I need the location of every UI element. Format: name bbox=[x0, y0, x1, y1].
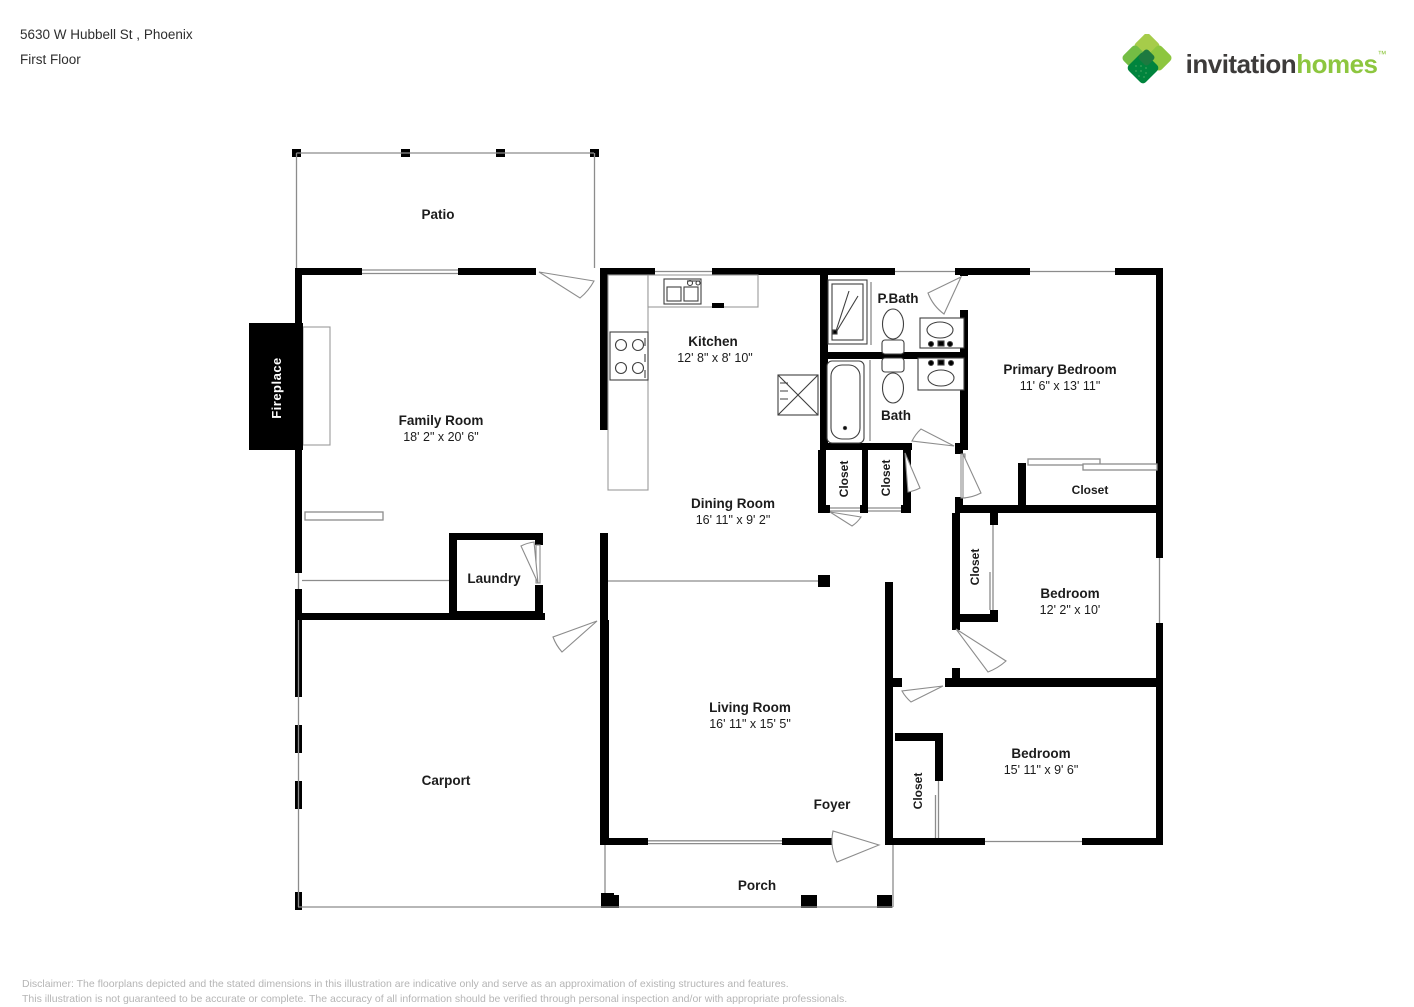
stove-icon bbox=[610, 332, 648, 380]
toilet-icon-pbath bbox=[882, 309, 904, 354]
patio-label: Patio bbox=[421, 207, 454, 222]
disclaimer-line1: Disclaimer: The floorplans depicted and … bbox=[22, 977, 1222, 992]
hall-closet-door-swing bbox=[830, 512, 861, 526]
pbath-door-swing bbox=[928, 277, 961, 314]
carport-door-swing bbox=[553, 621, 597, 652]
laundry-label: Laundry bbox=[467, 571, 521, 586]
bottom-bedroom-door-swing bbox=[902, 686, 943, 702]
bedroom-bottom-dims: 15' 11" x 9' 6" bbox=[1004, 763, 1079, 777]
floorplan-drawing: Patio Family Room 18' 2" x 20' 6" Kitche… bbox=[0, 0, 1414, 1000]
closet-label-bedroom-bottom: Closet bbox=[911, 773, 925, 810]
fireplace-hearth bbox=[303, 327, 330, 445]
closet-label-hall-b: Closet bbox=[879, 460, 893, 497]
closet-label-bedroom-mid: Closet bbox=[968, 549, 982, 586]
kitchen-dims: 12' 8" x 8' 10" bbox=[677, 351, 753, 365]
refrigerator-icon bbox=[778, 375, 818, 415]
closet-label-hall-a: Closet bbox=[837, 461, 851, 498]
kitchen-counter-left bbox=[608, 275, 648, 490]
walls-layer bbox=[292, 149, 1163, 910]
bath-label: Bath bbox=[881, 408, 911, 423]
living-room-label: Living Room bbox=[709, 700, 791, 715]
dining-room-dims: 16' 11" x 9' 2" bbox=[696, 513, 771, 527]
family-room-dims: 18' 2" x 20' 6" bbox=[403, 430, 479, 444]
room-labels-layer: Patio Family Room 18' 2" x 20' 6" Kitche… bbox=[269, 207, 1117, 893]
family-room-label: Family Room bbox=[399, 413, 484, 428]
living-room-dims: 16' 11" x 15' 5" bbox=[709, 717, 791, 731]
bathtub-icon bbox=[827, 361, 864, 443]
front-door-swing bbox=[832, 831, 879, 862]
kitchen-sink-icon bbox=[664, 279, 701, 304]
mid-bedroom-door-swing bbox=[956, 629, 1006, 672]
porch-label: Porch bbox=[738, 878, 776, 893]
bedroom-mid-dims: 12' 2" x 10' bbox=[1040, 603, 1101, 617]
hallway-door-swing bbox=[905, 453, 920, 492]
fireplace-label: Fireplace bbox=[269, 357, 284, 419]
primary-bedroom-label: Primary Bedroom bbox=[1003, 362, 1116, 377]
thin-lines-layer bbox=[297, 153, 1160, 907]
pbath-label: P.Bath bbox=[877, 291, 918, 306]
dishwasher-mark bbox=[712, 303, 724, 308]
bath-door-swing bbox=[912, 429, 954, 446]
bedroom-mid-label: Bedroom bbox=[1040, 586, 1099, 601]
bedroom-bottom-label: Bedroom bbox=[1011, 746, 1070, 761]
shower-icon bbox=[828, 280, 867, 344]
vanity-sink-icon-bath bbox=[918, 358, 964, 390]
disclaimer: Disclaimer: The floorplans depicted and … bbox=[22, 977, 1222, 1007]
toilet-icon-bath bbox=[882, 358, 904, 403]
primary-bedroom-dims: 11' 6" x 13' 11" bbox=[1020, 379, 1101, 393]
closet-label-primary: Closet bbox=[1072, 483, 1109, 497]
primary-bedroom-door-swing bbox=[963, 454, 981, 498]
kitchen-label: Kitchen bbox=[688, 334, 738, 349]
carport-label: Carport bbox=[422, 773, 471, 788]
foyer-label: Foyer bbox=[814, 797, 852, 812]
family-room-door-swing bbox=[539, 272, 594, 298]
dining-room-label: Dining Room bbox=[691, 496, 775, 511]
vanity-sink-icon-pbath bbox=[920, 318, 964, 348]
